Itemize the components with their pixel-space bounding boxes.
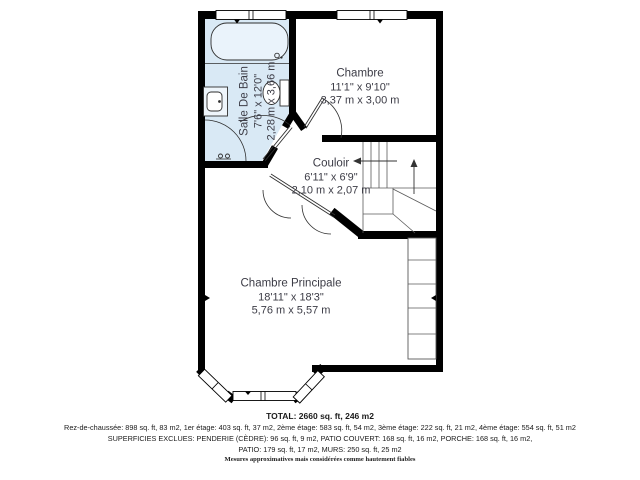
wall-bathroom-right	[289, 11, 296, 115]
floorplan-drawing	[0, 0, 640, 480]
window-bay-left	[198, 369, 232, 402]
door-bedroom	[304, 98, 342, 138]
bathtub-faucet-icon	[275, 53, 280, 58]
summary-floors: Rez-de-chaussée: 898 sq. ft, 83 m2, 1er …	[64, 423, 576, 432]
window-bedroom-top	[337, 11, 407, 20]
stair-lower-run	[408, 238, 436, 359]
wall-stub-bedroom-diagonal	[292, 112, 304, 129]
summary-disclaimer: Mesures approximatives mais considérées …	[225, 456, 416, 463]
tick-icon	[377, 20, 383, 24]
wall-left	[198, 11, 205, 371]
staircase	[363, 142, 436, 359]
stair-winder-line	[393, 189, 436, 211]
wall-right	[436, 11, 443, 372]
window-bay-bottom	[233, 392, 296, 401]
bathtub-drain-icon	[280, 56, 282, 58]
stair-winder-line	[393, 214, 415, 233]
summary-excluded-line2: PATIO: 179 sq. ft, 17 m2, MURS: 250 sq. …	[238, 445, 401, 454]
stair-arrow-up-icon	[411, 159, 418, 167]
summary-total: TOTAL: 2660 sq. ft, 246 m2	[266, 411, 374, 421]
window-bathroom-top	[216, 11, 286, 20]
vanity-faucet-icon	[218, 100, 221, 103]
toilet-tank	[280, 80, 289, 106]
wall-bottom	[312, 365, 443, 372]
toilet-bowl	[263, 82, 280, 105]
floorplan-page: Salle De Bain 7'6" x 12'0" 2,28 m x 3,66…	[0, 0, 640, 480]
tick-icon	[205, 295, 210, 301]
door-master-bedroom	[263, 174, 335, 234]
wall-bedroom-bottom	[322, 135, 436, 142]
window-bay-right	[293, 371, 324, 403]
wall-bathroom-bottom	[198, 161, 268, 168]
wall-corridor-diagonal	[332, 211, 362, 235]
summary-excluded-line1: SUPERFICIES EXCLUES: PENDERIE (CÈDRE): 9…	[108, 434, 533, 443]
stair-arrow-left-icon	[353, 158, 361, 165]
